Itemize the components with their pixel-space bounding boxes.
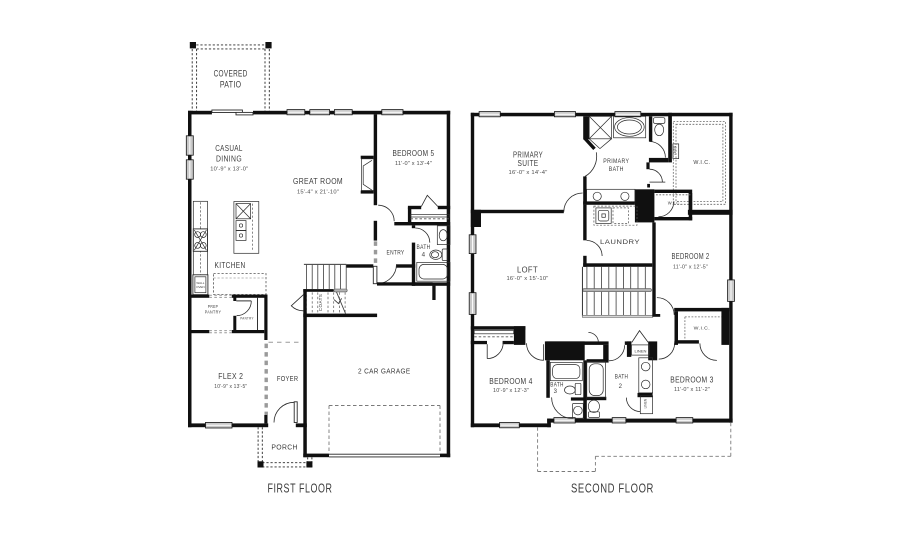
- svg-text:10'-9" x 12'-3": 10'-9" x 12'-3": [493, 388, 529, 394]
- svg-text:2 CAR GARAGE: 2 CAR GARAGE: [358, 366, 411, 375]
- svg-text:OVEN: OVEN: [196, 285, 205, 289]
- svg-text:11'-0" x 13'-4": 11'-0" x 13'-4": [395, 161, 432, 167]
- svg-text:15'-4" x 21'-10": 15'-4" x 21'-10": [297, 190, 339, 196]
- svg-text:PATIO: PATIO: [220, 80, 242, 90]
- svg-text:SECOND FLOOR: SECOND FLOOR: [571, 482, 654, 496]
- svg-text:PORCH: PORCH: [271, 442, 298, 451]
- svg-text:CASUAL: CASUAL: [215, 144, 243, 153]
- svg-text:BATH: BATH: [609, 167, 624, 173]
- svg-text:BATH: BATH: [417, 244, 431, 251]
- svg-text:ENTRY: ENTRY: [387, 250, 405, 257]
- svg-text:W.I.C.: W.I.C.: [694, 326, 711, 332]
- svg-text:FLEX 2: FLEX 2: [218, 372, 243, 381]
- svg-text:11'-0" x 12'-5": 11'-0" x 12'-5": [673, 264, 708, 270]
- svg-text:PRIMARY: PRIMARY: [603, 159, 629, 165]
- svg-text:3: 3: [554, 389, 558, 395]
- svg-text:DINING: DINING: [216, 155, 242, 164]
- svg-text:LAUNDRY: LAUNDRY: [600, 239, 640, 246]
- svg-text:BEDROOM 5: BEDROOM 5: [393, 149, 435, 158]
- svg-text:W.I.C.: W.I.C.: [668, 200, 682, 205]
- svg-text:KITCHEN: KITCHEN: [215, 261, 246, 270]
- svg-text:10'-9" x 13'-0": 10'-9" x 13'-0": [210, 167, 248, 173]
- svg-text:LINEN: LINEN: [643, 398, 647, 408]
- svg-text:16'-0" x 14'-4": 16'-0" x 14'-4": [509, 170, 548, 176]
- svg-text:W.I.C.: W.I.C.: [693, 160, 710, 166]
- svg-text:10'-9" x 13'-5": 10'-9" x 13'-5": [214, 384, 247, 390]
- svg-text:FOYER: FOYER: [277, 374, 299, 383]
- svg-text:LOFT: LOFT: [517, 265, 538, 274]
- svg-text:BEDROOM 2: BEDROOM 2: [672, 252, 710, 261]
- svg-text:PREP: PREP: [208, 304, 219, 309]
- svg-text:4: 4: [422, 252, 426, 259]
- svg-text:BATH: BATH: [550, 382, 564, 388]
- svg-text:BATH: BATH: [615, 374, 629, 380]
- svg-text:FIRST FLOOR: FIRST FLOOR: [268, 482, 333, 496]
- svg-text:PANTRY: PANTRY: [240, 317, 254, 321]
- svg-text:2: 2: [619, 384, 623, 390]
- svg-text:PANTRY: PANTRY: [205, 310, 222, 315]
- svg-text:BEDROOM 3: BEDROOM 3: [670, 375, 714, 384]
- svg-text:SUITE: SUITE: [518, 159, 539, 168]
- svg-text:16'-0" x 15'-10": 16'-0" x 15'-10": [507, 276, 549, 282]
- svg-text:COVERED: COVERED: [214, 69, 248, 79]
- svg-text:COATS: COATS: [318, 294, 323, 311]
- svg-text:GREAT ROOM: GREAT ROOM: [293, 177, 343, 186]
- svg-text:BEDROOM 4: BEDROOM 4: [489, 377, 533, 386]
- svg-text:LINEN: LINEN: [635, 349, 647, 353]
- svg-text:11'-0" x 11'-2": 11'-0" x 11'-2": [674, 387, 710, 393]
